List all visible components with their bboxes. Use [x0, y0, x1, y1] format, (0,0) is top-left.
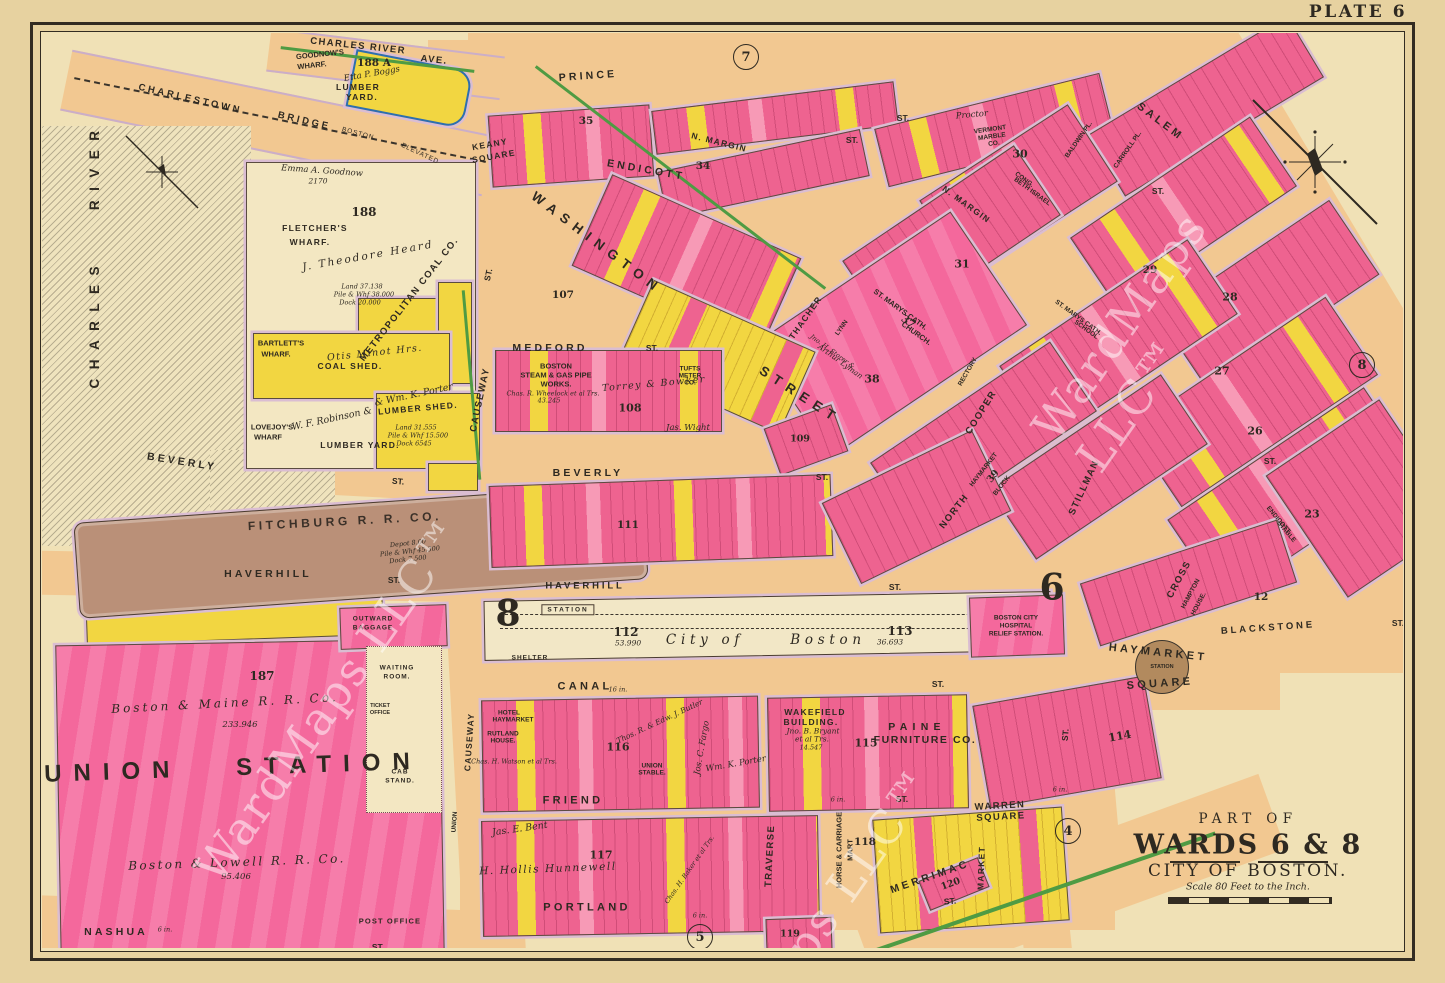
label-block-31: 31: [954, 259, 969, 272]
pipe-note-2: 6 in.: [693, 912, 708, 919]
label-emma-num: 2170: [308, 178, 327, 187]
street-label-st-8: ST.: [889, 583, 901, 593]
ward-circle-5: 5: [687, 924, 713, 948]
label-block-187: 187: [249, 670, 274, 684]
street-label-beverly-c: BEVERLY: [553, 467, 624, 479]
street-label-st-2: ST.: [846, 136, 858, 146]
label-lovejoys: LOVEJOY'S: [251, 424, 293, 433]
ward-number-8: 8: [495, 593, 520, 634]
street-label-st-11: ST.: [372, 943, 384, 948]
scale-bar: [1168, 897, 1332, 904]
label-tufts-3: CO.: [684, 379, 696, 386]
title-city: CITY OF BOSTON.: [1148, 862, 1348, 882]
label-112-area: 53.990: [615, 640, 641, 649]
label-baggage: BAGGAGE: [353, 624, 393, 631]
label-bartletts: BARTLETT'S: [258, 340, 304, 349]
label-block-34: 34: [696, 160, 711, 172]
label-block-29: 29: [1143, 264, 1158, 276]
label-block-118: 118: [854, 836, 876, 848]
label-room: ROOM.: [384, 673, 411, 680]
street-label-haverhill-w: HAVERHILL: [224, 568, 312, 580]
compass-rose-icon: [1245, 92, 1385, 232]
label-heard-dock: Dock 20.000: [339, 299, 381, 306]
label-carriage-mart-1: HORSE & CARRIAGE: [836, 812, 845, 888]
title-part-of: PART OF: [1198, 812, 1297, 828]
label-paine-2: FURNITURE CO.: [874, 734, 977, 746]
label-113-area: 36.693: [877, 639, 903, 648]
street-label-st-6: ST.: [816, 473, 828, 483]
label-hotel-haymarket: HAYMARKET: [493, 716, 534, 723]
pipe-note-4: 6 in.: [1053, 786, 1068, 793]
shed-building-2: [428, 463, 478, 491]
label-post-office: POST OFFICE: [359, 918, 421, 927]
label-ticket-office: OFFICE: [370, 710, 390, 716]
label-block-109: 109: [790, 435, 810, 446]
label-block-26: 26: [1247, 426, 1262, 439]
compass-rose-icon-small: [122, 132, 202, 212]
label-fletchers: FLETCHER'S: [282, 224, 348, 234]
label-lumber-yard: LUMBER YARD.: [320, 441, 400, 451]
label-union-stable-2: STABLE.: [638, 769, 665, 776]
label-ticket: TICKET: [370, 703, 390, 709]
label-rutland-2: HOUSE.: [491, 737, 516, 744]
label-city-of: City of: [666, 633, 744, 649]
label-block-111: 111: [617, 519, 639, 531]
label-boston-italic: Boston: [790, 633, 866, 649]
label-shelter: SHELTER: [512, 654, 549, 661]
street-label-st-1: ST.: [897, 114, 909, 124]
label-block-12: 12: [1254, 591, 1269, 603]
street-label-st-12: ST.: [943, 897, 956, 908]
street-label-union: UNION: [451, 811, 460, 832]
label-outward: OUTWARD: [353, 615, 393, 622]
label-boston-lowell-val: 95.406: [221, 873, 251, 883]
label-wakefield-area: 14.547: [800, 744, 823, 751]
block-111: [489, 474, 834, 568]
title-wards: WARDS 6 & 8: [1134, 829, 1363, 860]
label-block-188: 188: [351, 206, 376, 220]
street-label-nashua: NASHUA: [84, 926, 148, 938]
street-label-haverhill-c: HAVERHILL: [545, 582, 624, 593]
street-label-canal: CANAL: [558, 681, 613, 694]
label-cab-stand: STAND.: [385, 777, 415, 784]
rail-track-line-2: [500, 628, 1030, 629]
ward-circle-7: 7: [733, 44, 759, 70]
block-112-113-city-of-boston: [484, 591, 1052, 661]
label-block-108: 108: [619, 403, 642, 416]
street-label-st-10: ST.: [896, 795, 908, 805]
label-coal-shed: COAL SHED.: [317, 362, 382, 372]
street-label-friend: FRIEND: [543, 795, 604, 808]
label-block-107: 107: [552, 289, 574, 301]
label-cab: CAB: [391, 768, 408, 775]
label-vermont-3: CO.: [988, 139, 1000, 148]
label-station: STATION: [541, 604, 594, 615]
ward-circle-8: 8: [1349, 352, 1375, 378]
ward-number-6: 6: [1039, 567, 1064, 608]
label-haymarket-station: STATION: [1150, 664, 1173, 670]
label-bartletts-wharf: WHARF.: [261, 351, 290, 360]
label-block-35: 35: [579, 115, 594, 127]
label-yard: YARD.: [346, 93, 378, 103]
street-label-st-5: ST.: [391, 477, 404, 488]
label-waiting: WAITING: [380, 664, 415, 671]
map-canvas: WardMaps LLC™ WardMaps LLC™ WardMaps LLC…: [42, 33, 1403, 948]
street-label-medford: MEDFORD: [512, 342, 587, 354]
label-watson: Chas. H. Watson et al Trs.: [471, 758, 557, 765]
street-label-st-9: ST.: [932, 680, 944, 690]
street-label-st-14: ST.: [1264, 457, 1276, 467]
pipe-note-3: 6 in.: [831, 796, 846, 803]
block-35: [488, 104, 655, 187]
label-block-38: 38: [864, 374, 879, 387]
street-label-charles-river: CHARLES RIVER: [87, 122, 103, 389]
label-block-27: 27: [1214, 366, 1229, 379]
street-label-st-7: ST.: [388, 576, 400, 586]
label-block-28: 28: [1222, 292, 1237, 305]
label-lovejoys-wharf: WHARF: [254, 434, 282, 443]
label-jas-wight: Jas. Wight: [666, 424, 710, 434]
label-bsgw-3: WORKS.: [541, 381, 572, 390]
label-fletchers-wharf: WHARF.: [290, 238, 331, 248]
street-label-st-3: ST.: [1152, 187, 1164, 197]
label-block-30: 30: [1012, 149, 1027, 162]
street-label-market: MARKET: [976, 846, 987, 890]
street-label-st-16: ST.: [1061, 728, 1072, 741]
label-block-23: 23: [1304, 509, 1319, 522]
label-boston-maine-val: 233.946: [222, 721, 257, 731]
label-porter-dock: Dock 6545: [396, 440, 431, 447]
label-bsgw-area: 43.245: [538, 397, 561, 404]
label-relief-3: RELIEF STATION.: [989, 630, 1043, 637]
label-paine-1: PAINE: [888, 721, 946, 733]
ward-circle-4: 4: [1055, 818, 1081, 844]
pipe-note-5: 16 in.: [609, 686, 628, 693]
street-label-portland: PORTLAND: [543, 902, 631, 915]
street-label-st-13: ST.: [1392, 619, 1403, 629]
label-relief-2: HOSPITAL: [1000, 622, 1032, 629]
label-block-117: 117: [590, 850, 613, 863]
street-label-st-4: ST.: [646, 344, 658, 354]
pipe-note-1: 6 in.: [158, 926, 173, 933]
label-relief-1: BOSTON CITY: [994, 614, 1038, 621]
plate-number: PLATE 6: [1309, 3, 1407, 23]
title-scale: Scale 80 Feet to the Inch.: [1186, 883, 1310, 894]
atlas-plate: PLATE 6: [0, 0, 1445, 983]
label-block-119: 119: [780, 930, 800, 941]
